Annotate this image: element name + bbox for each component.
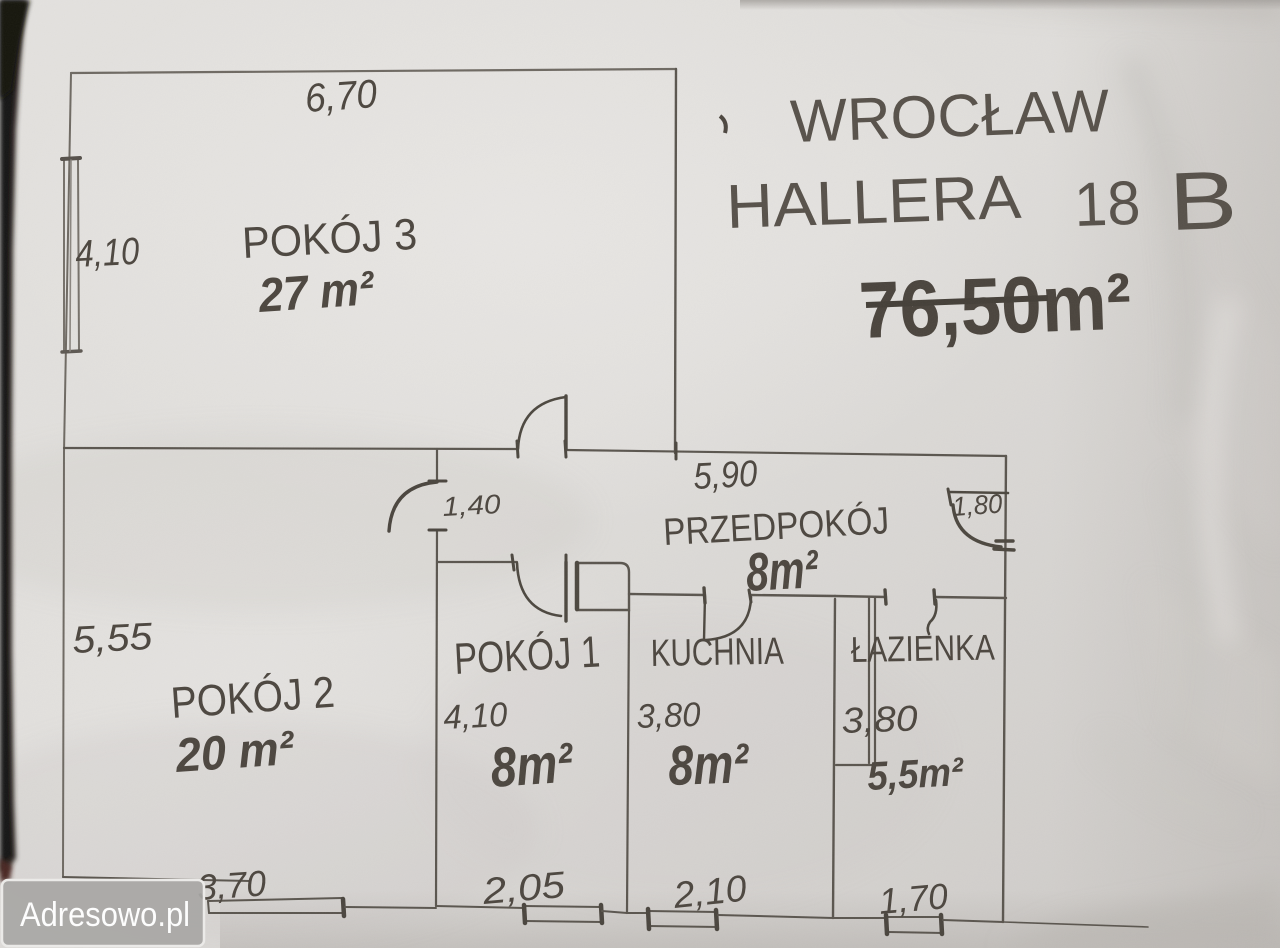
svg-text:Adresowo.pl: Adresowo.pl xyxy=(20,896,190,934)
